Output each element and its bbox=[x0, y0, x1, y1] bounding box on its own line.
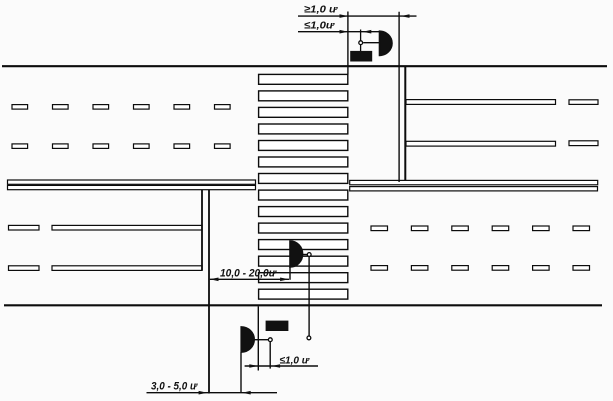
svg-text:≤1,0 ư: ≤1,0 ư bbox=[280, 355, 311, 367]
svg-text:≤1,0ư: ≤1,0ư bbox=[304, 20, 336, 32]
svg-text:≥1,0 ư: ≥1,0 ư bbox=[304, 3, 339, 15]
svg-text:3,0 - 5,0 ư: 3,0 - 5,0 ư bbox=[151, 381, 198, 393]
svg-text:10,0 - 20,0ư: 10,0 - 20,0ư bbox=[220, 267, 277, 279]
